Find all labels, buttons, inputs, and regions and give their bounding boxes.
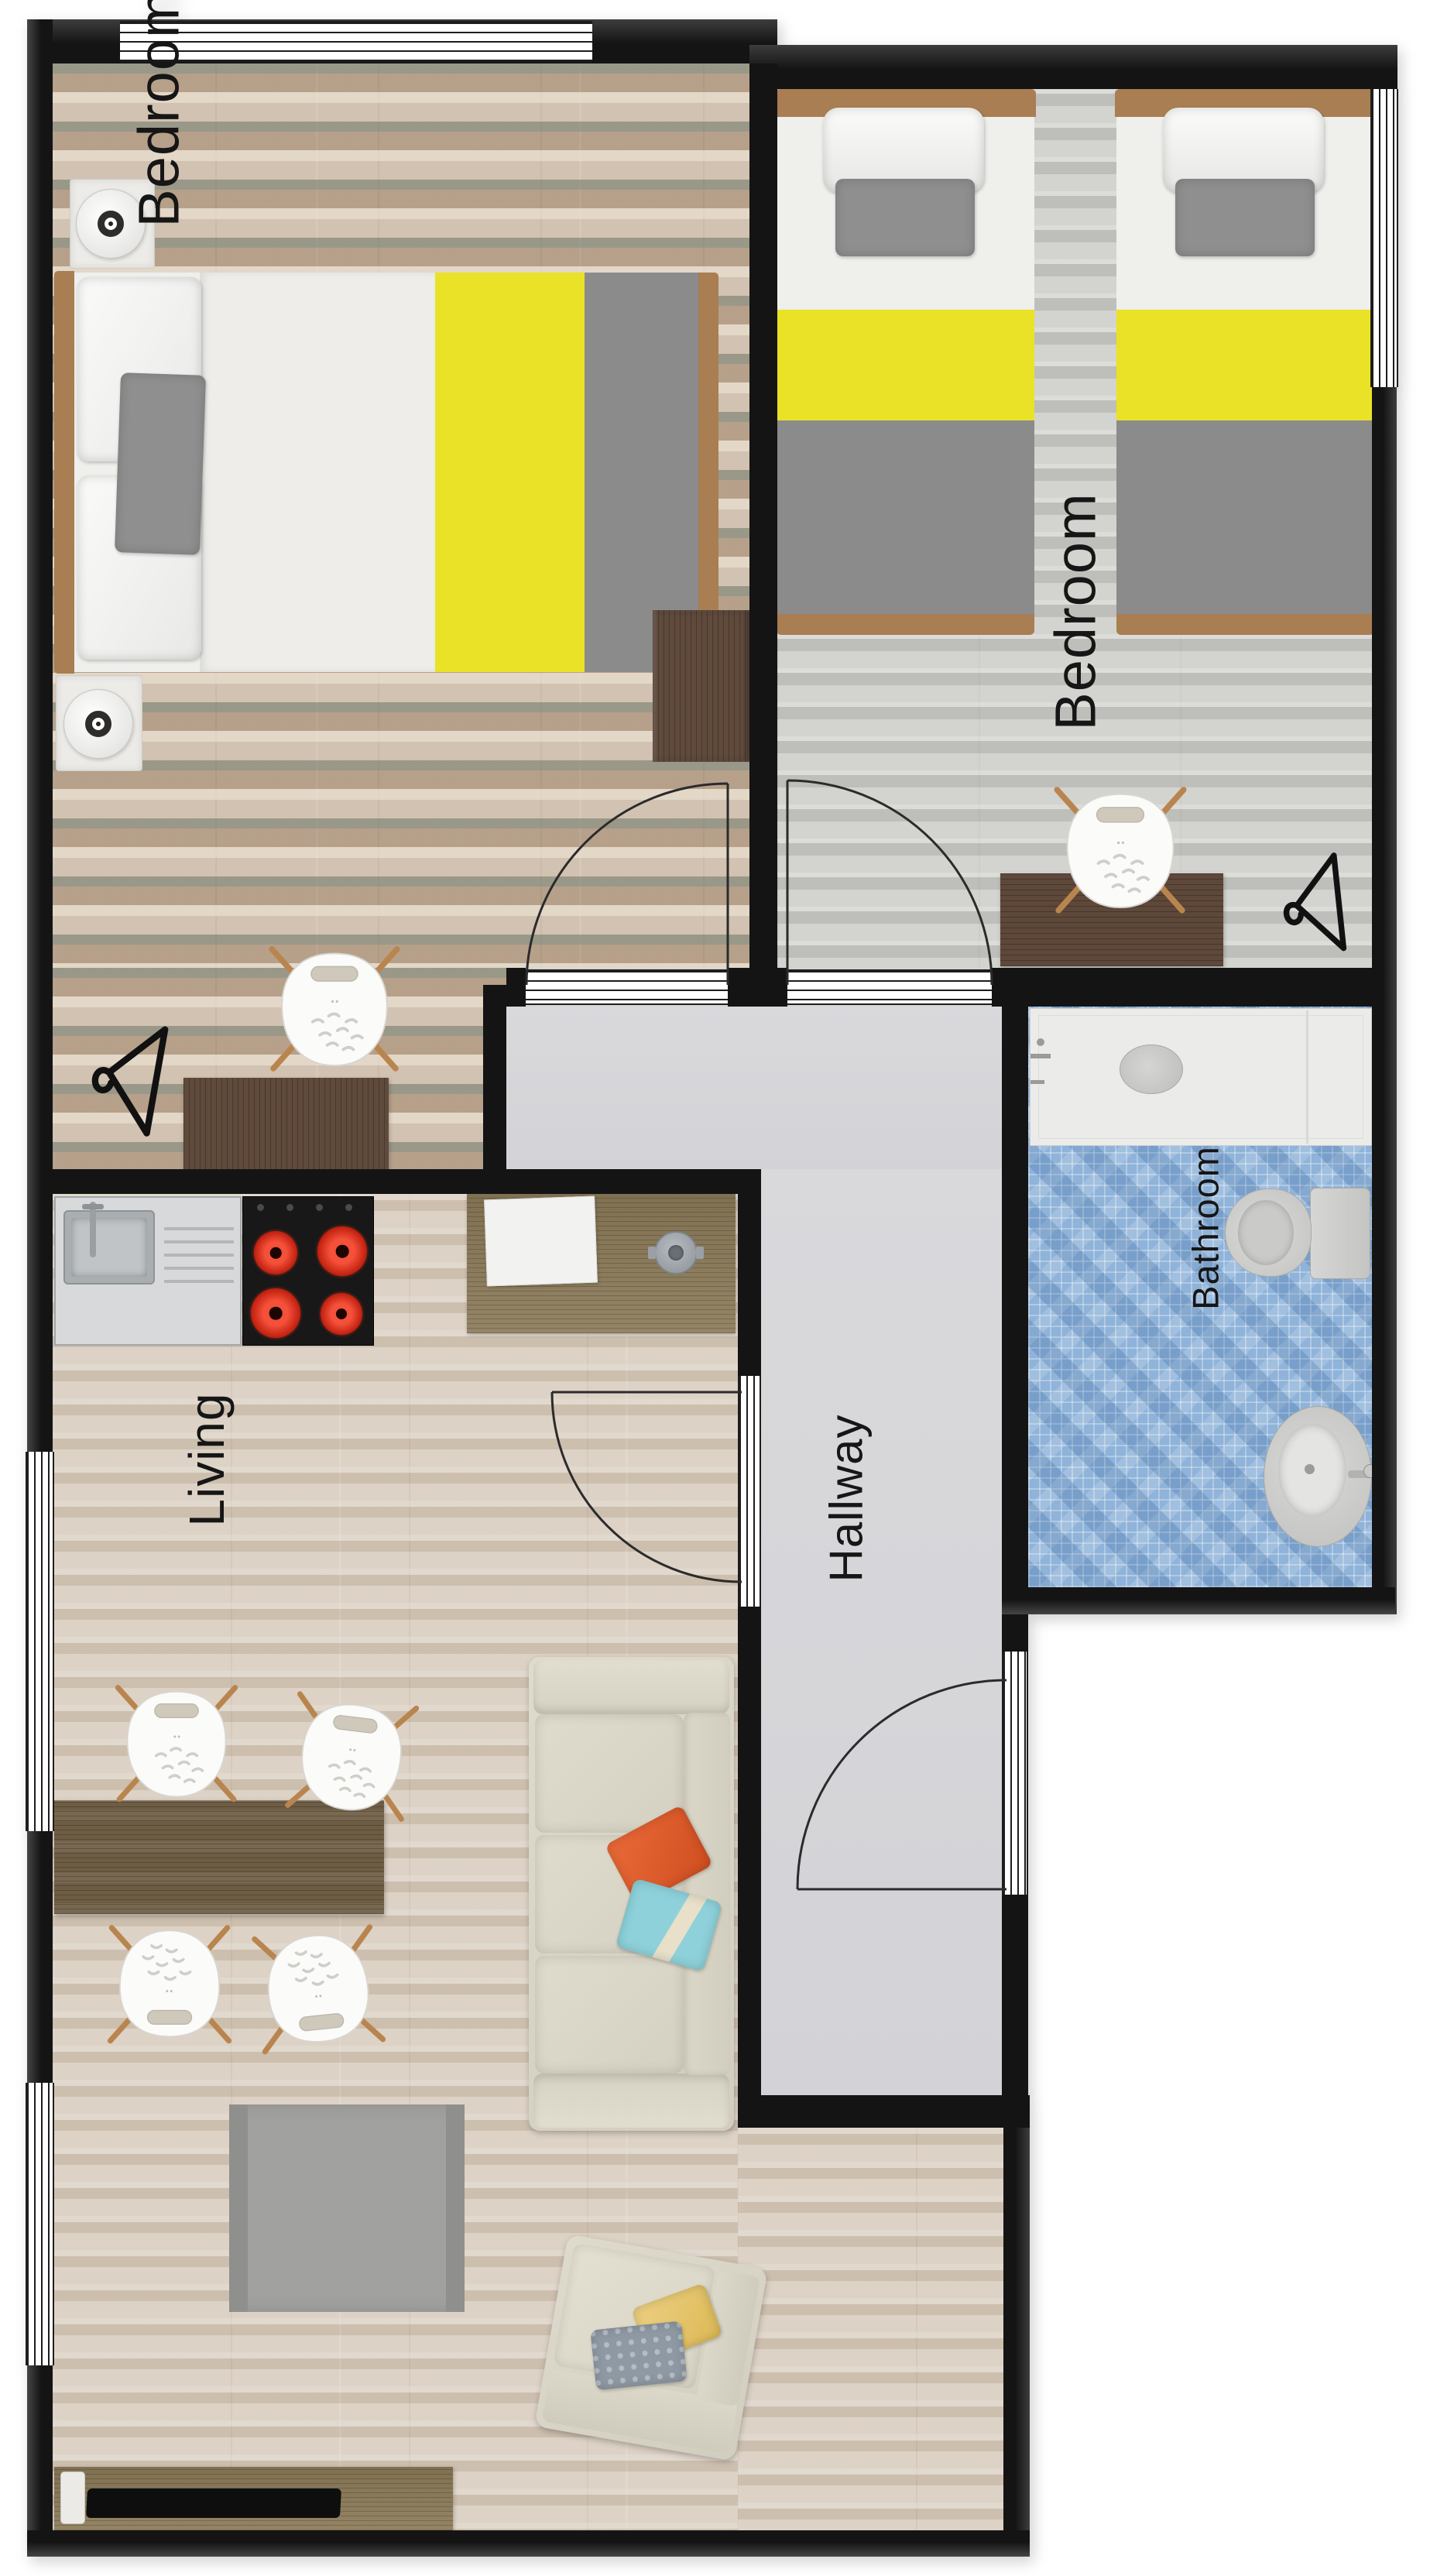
room-label-bedroom-right: Bedroom <box>1043 492 1109 730</box>
twin-bed <box>775 89 1036 635</box>
bed-blanket-gray <box>777 420 1034 614</box>
tv-soundbar <box>86 2489 341 2518</box>
window <box>26 1452 54 1831</box>
wall-segment <box>1002 1587 1395 1614</box>
rug <box>229 2104 465 2312</box>
wall-segment <box>506 968 526 1007</box>
wall-segment <box>738 2095 1030 2128</box>
desk-chair <box>1047 771 1194 926</box>
stove-burner <box>317 1226 367 1276</box>
speaker <box>60 2471 85 2524</box>
dining-chair <box>108 1674 245 1810</box>
wall-segment <box>992 968 1372 1007</box>
bed-footboard <box>777 614 1034 635</box>
desk <box>183 1078 389 1171</box>
cooking-pot <box>654 1231 698 1274</box>
sofa <box>529 1657 734 2131</box>
shower-faucet <box>1030 1054 1051 1058</box>
wall-segment <box>483 985 506 1194</box>
room-label-bedroom-left: Bedroom <box>126 0 192 228</box>
bed-runner-yellow <box>777 310 1034 420</box>
tv-cabinet <box>54 2467 453 2530</box>
sofa-armrest <box>533 2073 729 2128</box>
kitchen-sink-unit <box>54 1196 242 1346</box>
wall-segment <box>728 968 787 1007</box>
bed-pillow-gray <box>115 372 206 555</box>
room-label-bathroom: Bathroom <box>1185 1146 1227 1310</box>
dresser <box>653 610 749 762</box>
living-floor-right <box>738 2128 1003 2530</box>
door-opening-bedroom-left <box>526 969 728 1005</box>
door-opening-living <box>738 1376 761 1607</box>
sink-faucet <box>90 1202 96 1257</box>
kitchen-island <box>467 1194 736 1333</box>
bed-headboard <box>54 271 74 674</box>
room-label-hallway: Hallway <box>820 1414 873 1582</box>
shower-glass <box>1306 1010 1308 1144</box>
stove-burner <box>254 1231 297 1274</box>
armchair <box>534 2234 768 2461</box>
wall-segment <box>738 1607 761 2095</box>
hallway-floor <box>761 1169 1002 2095</box>
room-label-living: Living <box>178 1392 235 1526</box>
sofa-armrest <box>533 1660 729 1714</box>
stove-burner <box>251 1288 300 1338</box>
desk-chair <box>262 933 407 1082</box>
cutting-board <box>484 1196 598 1287</box>
wall-segment <box>738 1194 761 1376</box>
shower <box>1030 1008 1372 1146</box>
entry-door-opening <box>1002 1652 1028 1895</box>
wall-segment <box>53 1169 761 1194</box>
toilet-tank <box>1310 1188 1370 1279</box>
dining-chair <box>101 1914 238 2057</box>
stove-burner <box>321 1293 362 1335</box>
wall-segment <box>1003 2128 1030 2557</box>
window <box>26 2083 54 2365</box>
double-bed <box>54 271 718 674</box>
wall-segment <box>1002 1614 1028 1652</box>
armchair-pillow-gray <box>590 2320 688 2390</box>
wall-segment <box>1002 968 1028 1614</box>
floor-plan: Bedroom Bedroom Bathroom Hallway Living <box>0 0 1430 2576</box>
wall-segment <box>749 45 1397 89</box>
clothes-hanger-icon <box>1271 846 1359 962</box>
door-opening-bedroom-right <box>787 969 992 1005</box>
dining-chair <box>242 1912 394 2070</box>
sink-basin <box>63 1210 155 1285</box>
window <box>1370 89 1398 387</box>
dining-chair <box>276 1677 428 1833</box>
stove-cooktop <box>242 1196 374 1346</box>
twin-bed <box>1115 89 1376 635</box>
bed-sheet-white <box>200 273 435 672</box>
bed-runner-yellow <box>435 273 585 672</box>
wall-segment <box>27 2530 1030 2557</box>
hallway-floor-upper <box>506 1007 1002 1169</box>
bed-pillow-gray <box>835 179 975 256</box>
wall-segment <box>1002 1895 1028 2095</box>
shower-drain <box>1120 1044 1183 1094</box>
washbasin <box>1264 1406 1372 1547</box>
table-lamp <box>63 689 133 759</box>
toilet-bowl <box>1225 1189 1312 1277</box>
wall-segment <box>749 63 777 1007</box>
